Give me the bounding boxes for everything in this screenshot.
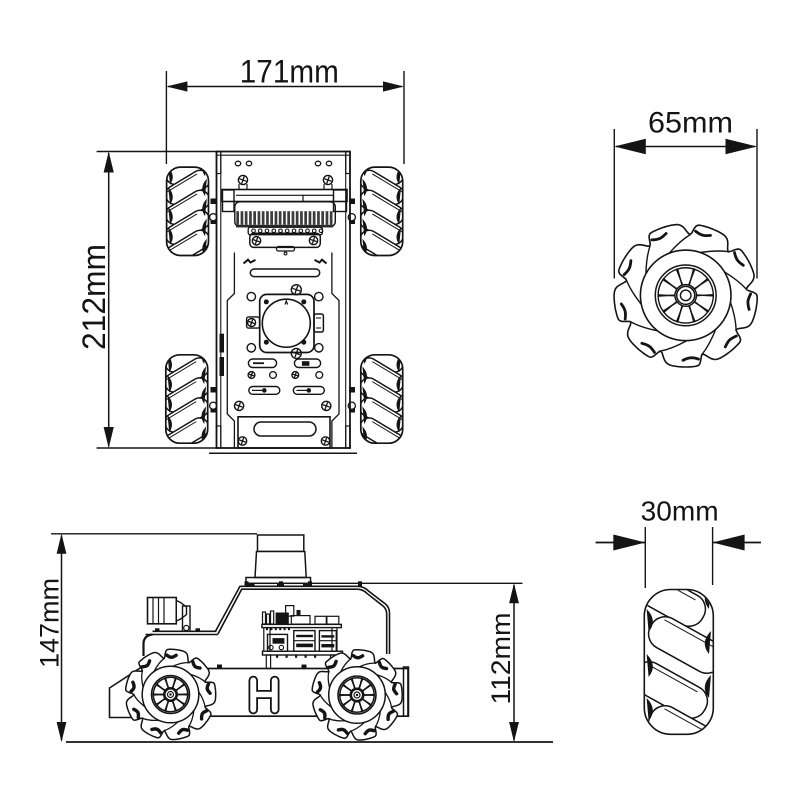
svg-text:112mm: 112mm [486, 613, 516, 705]
svg-text:65mm: 65mm [648, 107, 733, 140]
svg-text:30mm: 30mm [641, 496, 719, 527]
svg-text:212mm: 212mm [76, 244, 112, 350]
svg-text:147mm: 147mm [34, 578, 64, 668]
svg-text:171mm: 171mm [240, 54, 339, 90]
